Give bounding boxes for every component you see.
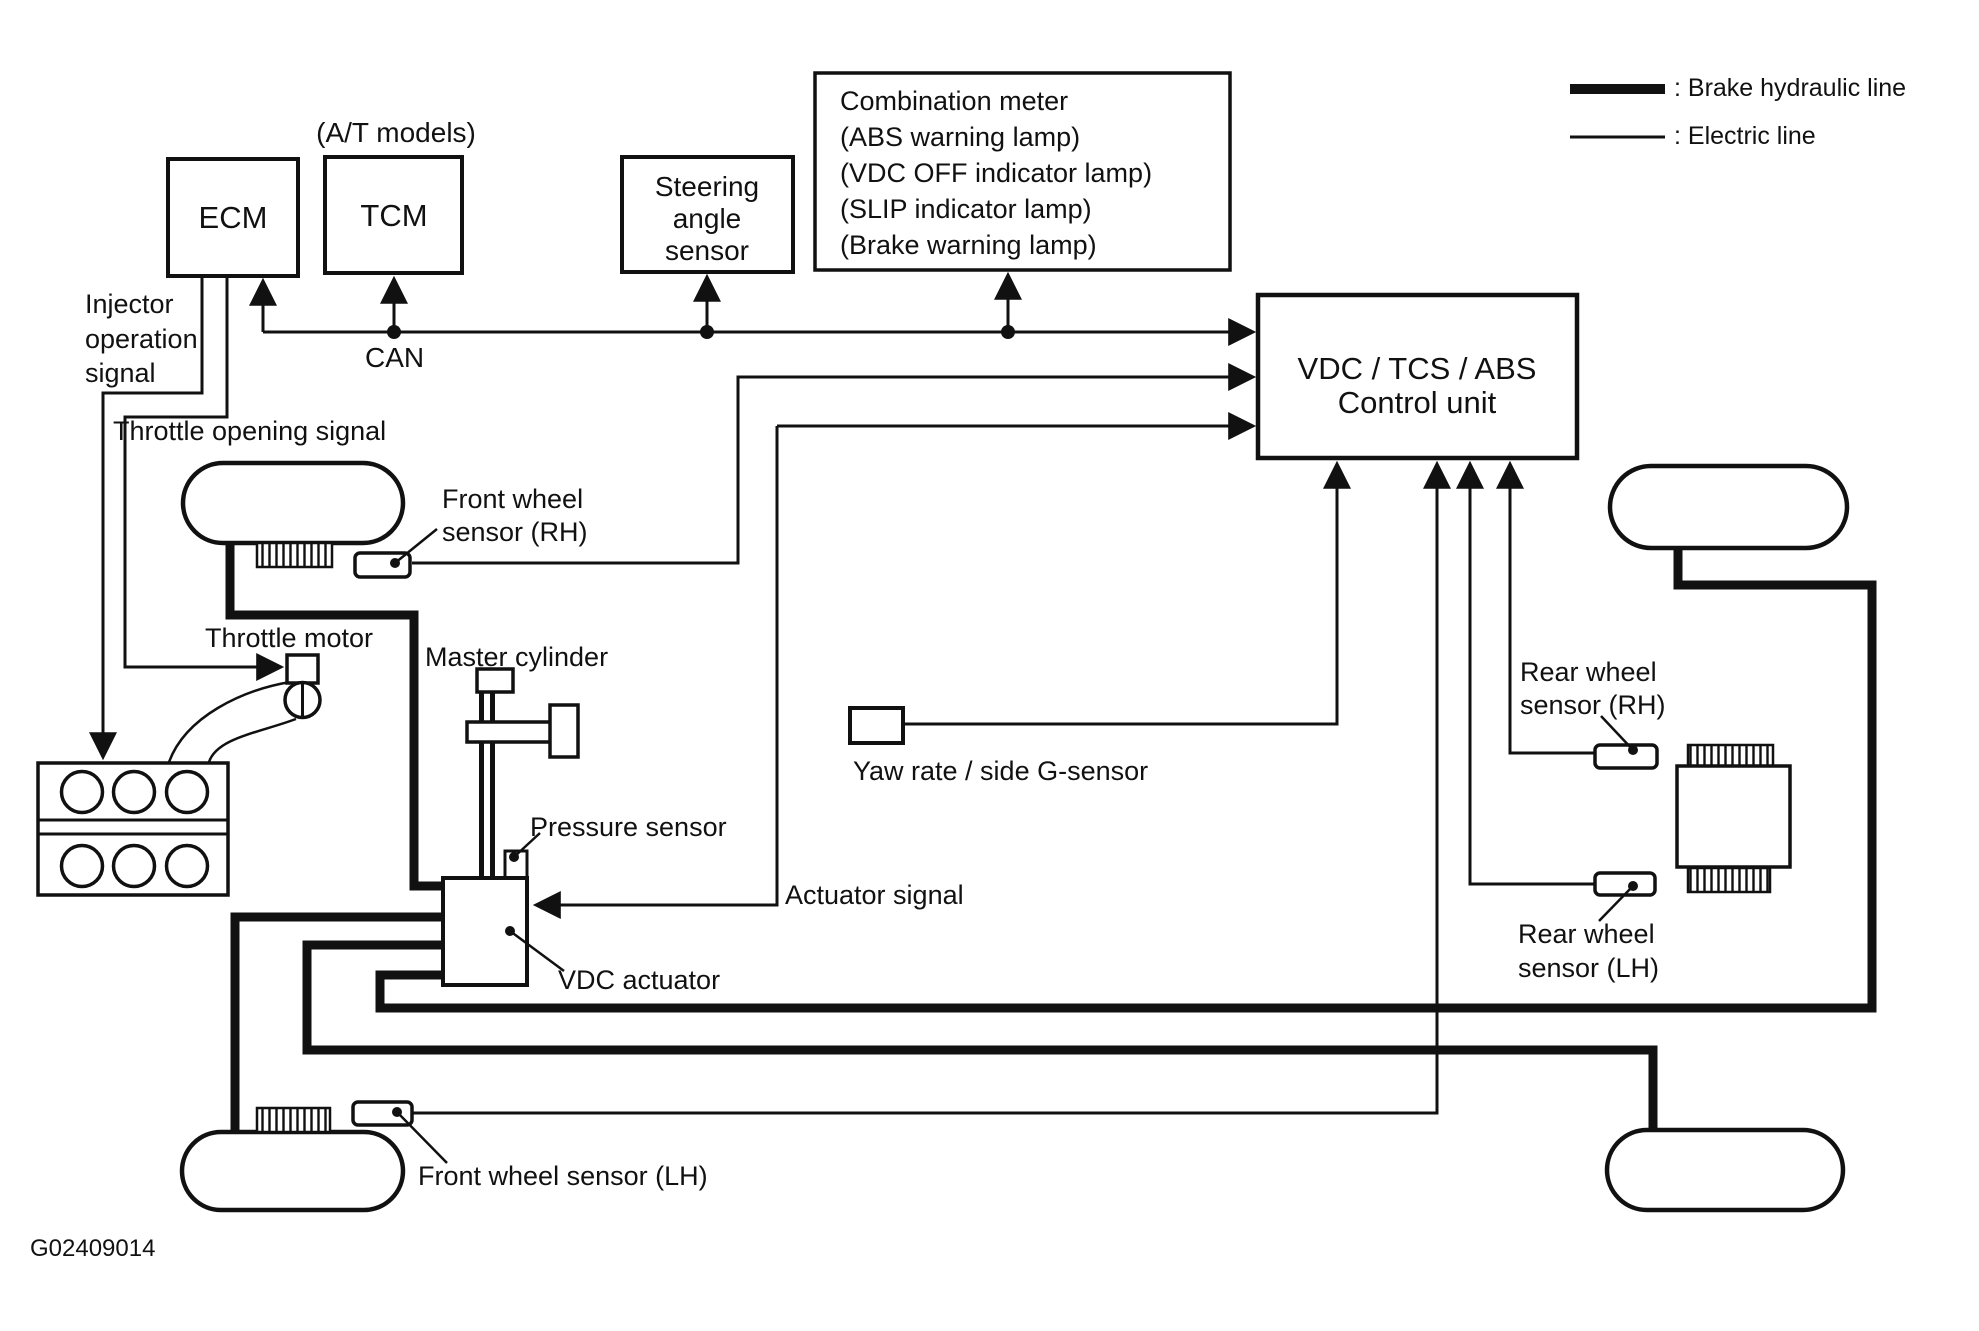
rear-axle-block xyxy=(1677,766,1790,867)
yaw-rate-sensor xyxy=(850,708,903,743)
injector-label-line3: signal xyxy=(85,358,156,388)
ecm-label: ECM xyxy=(199,200,268,235)
diagram-canvas: : Brake hydraulic line : Electric line E… xyxy=(0,0,1979,1331)
steering-label-line1: Steering xyxy=(655,171,759,202)
pressure-sensor-label: Pressure sensor xyxy=(530,812,727,842)
injector-label-line1: Injector xyxy=(85,289,174,319)
rear-lh-wheel-sensor xyxy=(1595,873,1655,895)
throttle-motor-body xyxy=(287,655,318,683)
rear-rh-label-line2: sensor (RH) xyxy=(1520,690,1666,720)
master-cylinder-label: Master cylinder xyxy=(425,642,608,672)
front-rh-tire xyxy=(183,463,403,543)
throttle-opening-label: Throttle opening signal xyxy=(113,416,386,446)
rear-rh-wheel-sensor xyxy=(1595,745,1657,768)
master-cylinder-bar xyxy=(467,722,552,742)
combination-label-line1: Combination meter xyxy=(840,86,1068,116)
rear-lh-label-line2: sensor (LH) xyxy=(1518,953,1659,983)
combination-label-line3: (VDC OFF indicator lamp) xyxy=(840,158,1152,188)
front-lh-label: Front wheel sensor (LH) xyxy=(418,1161,708,1191)
combination-label-line5: (Brake warning lamp) xyxy=(840,230,1097,260)
front-rh-leader-dot xyxy=(390,558,400,568)
front-rh-label-line1: Front wheel xyxy=(442,484,583,514)
engine-cylinder xyxy=(62,772,103,813)
tcm-label: TCM xyxy=(360,198,427,233)
rear-rh-tire xyxy=(1610,466,1847,548)
can-junction-dot-steering xyxy=(700,325,714,339)
vdc-actuator-label: VDC actuator xyxy=(558,965,720,995)
steering-label-line3: sensor xyxy=(665,235,749,266)
engine-cylinder xyxy=(114,846,155,887)
yaw-sensor-label: Yaw rate / side G-sensor xyxy=(853,756,1148,786)
can-junction-dot-combination xyxy=(1001,325,1015,339)
figure-id-label: G02409014 xyxy=(30,1235,155,1262)
front-lh-wheel-sensor xyxy=(353,1102,412,1125)
vdc-actuator-leader-dot xyxy=(505,926,515,936)
injector-label-line2: operation xyxy=(85,324,198,354)
engine-cylinder xyxy=(167,846,208,887)
front-lh-leader-dot xyxy=(392,1107,402,1117)
rear-rh-leader-dot xyxy=(1628,745,1638,755)
combination-label-line2: (ABS warning lamp) xyxy=(840,122,1080,152)
legend-brake-label: : Brake hydraulic line xyxy=(1674,74,1906,102)
vdc-tcs-abs-system-diagram: : Brake hydraulic line : Electric line E… xyxy=(0,0,1979,1331)
rear-rh-label-line1: Rear wheel xyxy=(1520,657,1657,687)
engine-cylinder xyxy=(62,846,103,887)
master-cylinder-cap xyxy=(477,669,513,692)
engine-cylinder xyxy=(114,772,155,813)
tcm-note-label: (A/T models) xyxy=(316,117,476,148)
throttle-motor-label: Throttle motor xyxy=(205,623,373,653)
rear-lh-label-line1: Rear wheel xyxy=(1518,919,1655,949)
legend-electric-label: : Electric line xyxy=(1674,122,1816,150)
front-rh-sensor-rotor xyxy=(257,543,332,567)
can-label: CAN xyxy=(365,342,424,373)
front-lh-tire xyxy=(182,1132,403,1210)
pressure-sensor-leader-dot xyxy=(509,852,519,862)
rear-rh-sensor-rotor xyxy=(1688,745,1773,766)
combination-label-line4: (SLIP indicator lamp) xyxy=(840,194,1092,224)
can-junction-dot-tcm xyxy=(387,325,401,339)
rear-lh-leader-dot xyxy=(1628,881,1638,891)
control-unit-label-line2: Control unit xyxy=(1338,385,1497,420)
control-unit-label-line1: VDC / TCS / ABS xyxy=(1298,351,1537,386)
front-lh-sensor-rotor xyxy=(257,1108,330,1132)
master-cylinder-booster xyxy=(550,705,578,757)
engine-cylinder xyxy=(167,772,208,813)
actuator-signal-label: Actuator signal xyxy=(785,880,964,910)
steering-label-line2: angle xyxy=(673,203,742,234)
front-rh-label-line2: sensor (RH) xyxy=(442,517,588,547)
rear-lh-sensor-rotor xyxy=(1688,868,1770,892)
rear-lh-tire xyxy=(1607,1130,1843,1210)
